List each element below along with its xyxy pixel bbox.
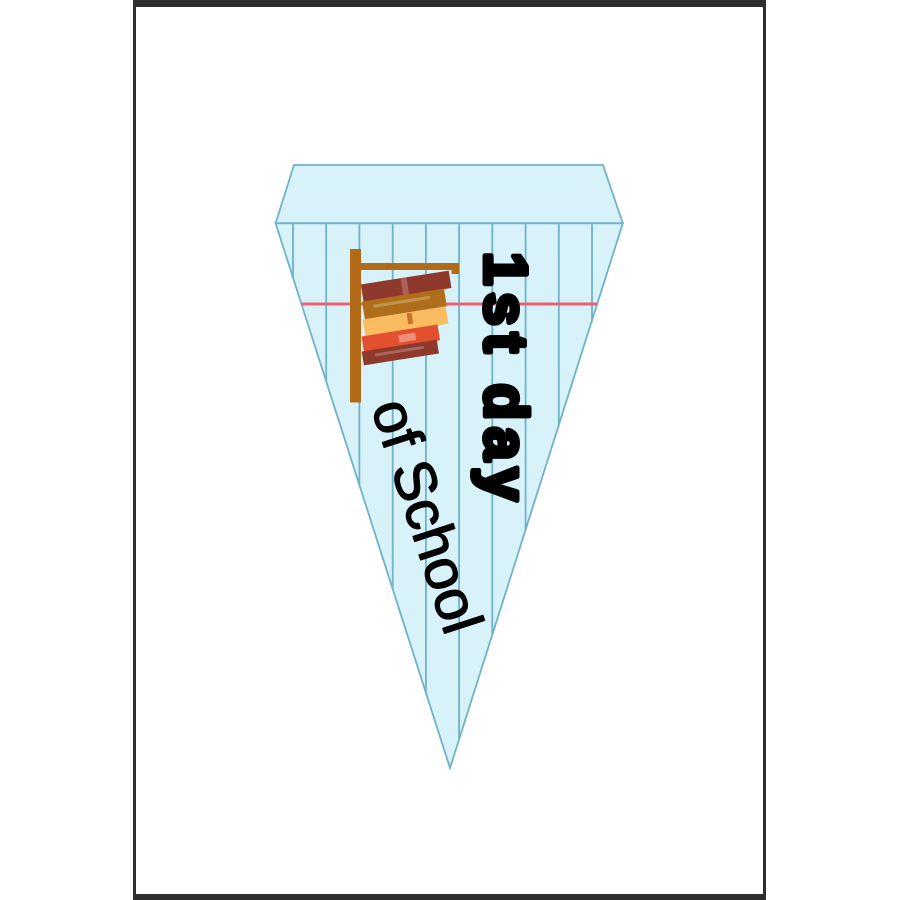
svg-text:1st day: 1st day [472, 252, 539, 508]
